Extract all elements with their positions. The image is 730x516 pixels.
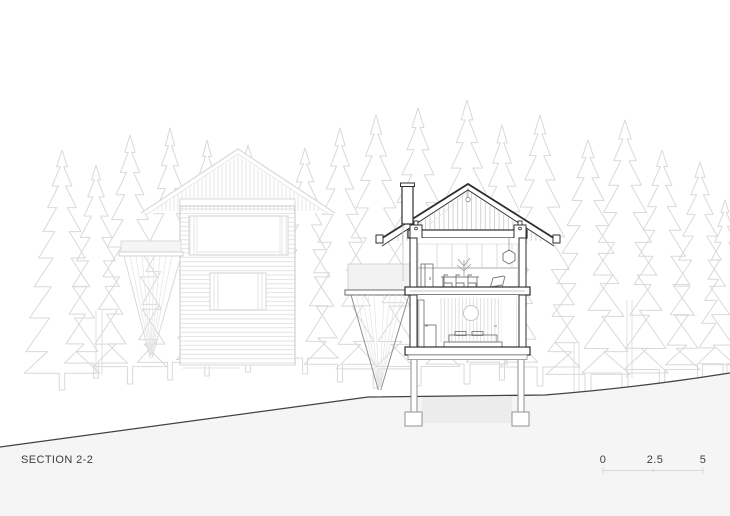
drawing-sheet: SECTION 2-2 0 2.5 5 [0, 0, 730, 516]
scale-label-2: 5 [700, 454, 707, 466]
scale-label-1: 2.5 [647, 454, 664, 466]
stilt-column [518, 356, 524, 413]
ground-profile [0, 373, 730, 516]
floor-slab [405, 287, 530, 295]
tree-trunk [574, 342, 579, 396]
base-beam [405, 347, 530, 360]
adjacent-cabin-elevation [119, 149, 335, 368]
conifer-tree [93, 135, 167, 384]
stilt-column [411, 356, 417, 413]
conifer-tree [698, 200, 730, 376]
terrain-fill [0, 373, 730, 516]
conifer-tree [546, 140, 630, 392]
lower-floor-interior [416, 295, 520, 349]
deck-platform [119, 241, 183, 256]
scale-label-0: 0 [600, 454, 607, 466]
upper-window [189, 216, 288, 255]
concrete-footing [512, 412, 529, 426]
section-title: SECTION 2-2 [21, 454, 93, 466]
section-drawing-canvas: SECTION 2-2 0 2.5 5 [0, 0, 730, 516]
eave-fascia [553, 235, 560, 243]
wall-top-beam [180, 199, 295, 206]
eaves-beam [408, 230, 527, 238]
wall-mirror [464, 306, 479, 321]
excavation-zone [422, 397, 512, 423]
cantilevered-deck [345, 264, 412, 295]
concrete-footing [405, 412, 422, 426]
conifer-tree [336, 115, 416, 388]
upper-floor-interior [416, 238, 520, 292]
conifer-tree [24, 150, 100, 390]
lower-window [210, 273, 266, 310]
eave-fascia [376, 235, 383, 243]
